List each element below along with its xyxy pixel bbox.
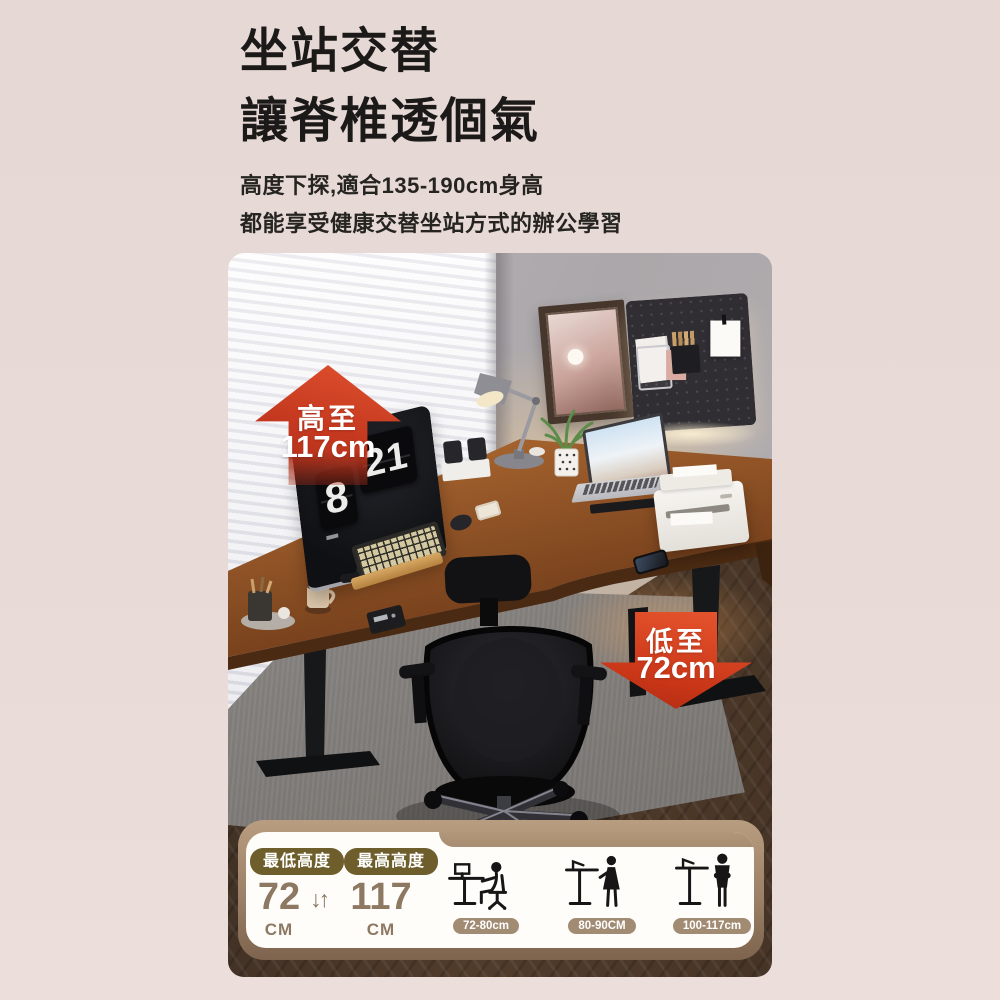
max-height-arrow-badge: 高至 117cm bbox=[255, 365, 401, 485]
subtitle-line2: 都能享受健康交替坐站方式的辦公學習 bbox=[240, 206, 780, 238]
range-figure-standing-male: 100-117cm bbox=[664, 850, 754, 934]
spec-card: 最低高度 最高高度 72 ↓↑ 117 CM CM bbox=[246, 832, 754, 948]
page-title-line1: 坐站交替 bbox=[240, 28, 780, 76]
card-notch bbox=[439, 832, 754, 847]
printer bbox=[651, 465, 757, 560]
subtitle-line1: 高度下探,適合135-190cm身高 bbox=[240, 168, 780, 200]
max-height-pill: 最高高度 bbox=[344, 848, 438, 875]
max-height-unit: CM bbox=[346, 920, 416, 940]
range-pill: 100-117cm bbox=[673, 918, 751, 934]
min-height-value: 72cm bbox=[600, 650, 752, 686]
standing-desk-male-icon bbox=[670, 850, 754, 916]
min-height-pill: 最低高度 bbox=[250, 848, 344, 875]
range-figure-standing-female: 80-90CM bbox=[554, 850, 650, 934]
chair-headrest bbox=[444, 554, 532, 604]
height-spec-panel: 最低高度 最高高度 72 ↓↑ 117 CM CM bbox=[238, 820, 764, 960]
range-pill: 72-80cm bbox=[453, 918, 519, 934]
min-height-number: 72 bbox=[250, 876, 308, 919]
printer-output-paper bbox=[670, 511, 713, 525]
office-chair bbox=[383, 548, 623, 838]
header: 坐站交替 讓脊椎透個氣 高度下探,適合135-190cm身高 都能享受健康交替坐… bbox=[240, 28, 780, 238]
range-figure-sitting: 72-80cm bbox=[438, 850, 534, 934]
standing-desk-female-icon bbox=[560, 850, 644, 916]
sitting-desk-icon bbox=[444, 850, 528, 916]
page-title-line2: 讓脊椎透個氣 bbox=[240, 98, 780, 146]
min-height-arrow-badge: 低至 72cm bbox=[600, 612, 752, 709]
max-height-number: 117 bbox=[346, 876, 416, 919]
range-pill: 80-90CM bbox=[568, 918, 635, 934]
wireless-charger bbox=[529, 447, 545, 456]
min-height-unit: CM bbox=[250, 920, 308, 940]
max-height-value: 117cm bbox=[255, 429, 401, 465]
chair-lumbar bbox=[453, 638, 563, 762]
updown-arrows-icon: ↓↑ bbox=[310, 886, 327, 913]
product-page: 坐站交替 讓脊椎透個氣 高度下探,適合135-190cm身高 都能享受健康交替坐… bbox=[0, 0, 1000, 1000]
chair-headrest-post bbox=[480, 598, 498, 626]
